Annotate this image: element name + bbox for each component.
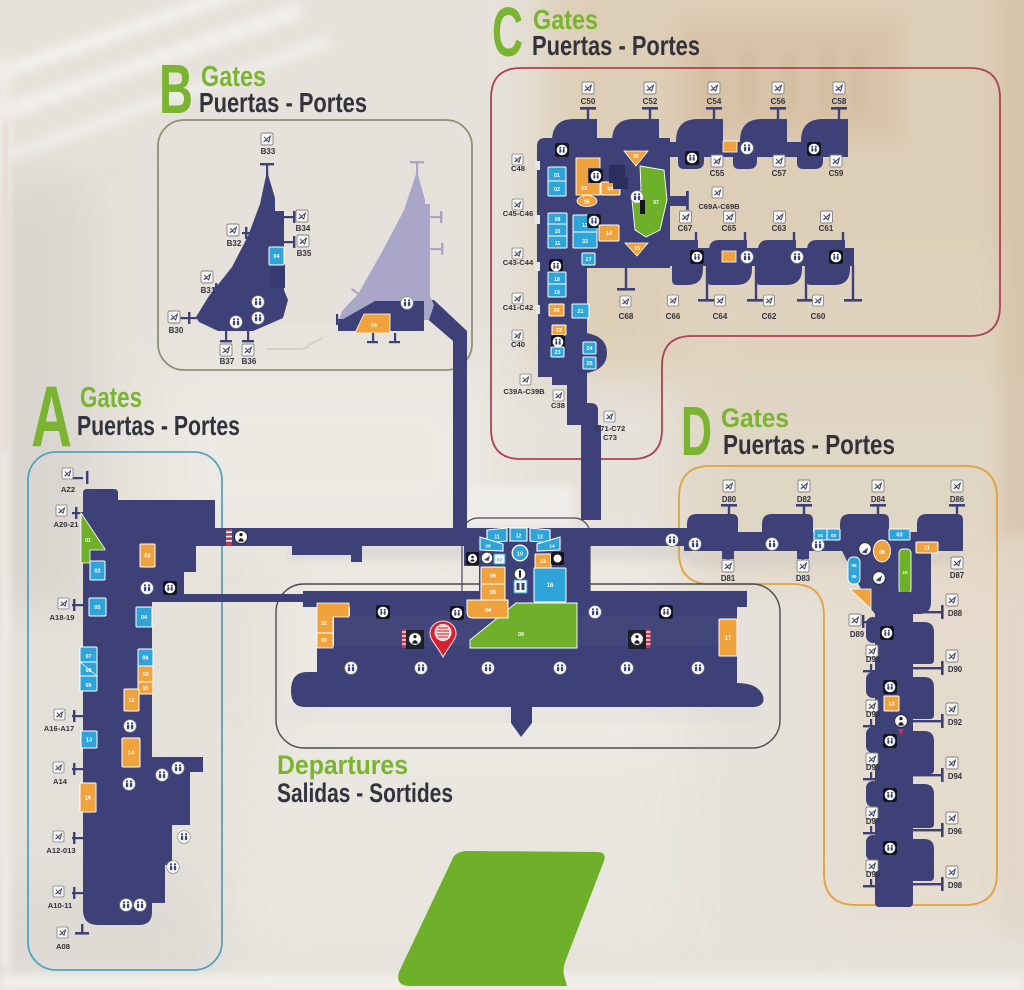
svg-text:D82: D82 <box>797 495 812 504</box>
svg-text:Puertas - Portes: Puertas - Portes <box>723 429 895 460</box>
svg-text:11: 11 <box>494 535 500 541</box>
svg-text:04: 04 <box>141 615 148 621</box>
svg-text:B37: B37 <box>220 357 235 366</box>
svg-text:B33: B33 <box>261 147 276 156</box>
svg-text:03: 03 <box>896 533 902 539</box>
svg-text:11: 11 <box>555 241 561 247</box>
svg-text:C61: C61 <box>819 224 834 233</box>
svg-text:11: 11 <box>143 686 149 692</box>
svg-text:D99: D99 <box>866 870 881 879</box>
svg-text:18: 18 <box>554 277 560 283</box>
svg-text:09: 09 <box>518 632 524 638</box>
svg-text:07: 07 <box>653 200 659 206</box>
svg-text:C45-C46: C45-C46 <box>503 209 533 218</box>
svg-text:17: 17 <box>725 636 731 642</box>
svg-text:03: 03 <box>581 186 587 192</box>
svg-text:08: 08 <box>485 544 491 550</box>
svg-text:A14: A14 <box>53 777 68 786</box>
svg-text:C56: C56 <box>771 97 786 106</box>
svg-text:A16-A17: A16-A17 <box>44 724 74 733</box>
svg-text:C60: C60 <box>811 312 826 321</box>
svg-text:C73: C73 <box>603 433 617 442</box>
svg-text:C39A-C39B: C39A-C39B <box>503 387 545 396</box>
svg-text:07: 07 <box>497 558 503 564</box>
svg-text:B36: B36 <box>242 357 257 366</box>
svg-text:D83: D83 <box>796 574 811 583</box>
svg-text:08: 08 <box>86 668 92 674</box>
svg-text:D98: D98 <box>948 881 963 890</box>
svg-text:D80: D80 <box>722 495 737 504</box>
svg-text:10: 10 <box>902 570 908 576</box>
svg-text:02: 02 <box>554 187 560 193</box>
svg-text:C52: C52 <box>643 97 658 106</box>
svg-text:D81: D81 <box>721 574 736 583</box>
svg-text:14: 14 <box>128 751 135 757</box>
svg-text:D90: D90 <box>948 665 963 674</box>
svg-text:03: 03 <box>144 554 150 560</box>
svg-text:D95: D95 <box>866 763 881 772</box>
svg-text:05: 05 <box>94 605 100 611</box>
svg-text:04: 04 <box>273 254 280 260</box>
svg-text:C62: C62 <box>762 312 777 321</box>
svg-text:15: 15 <box>634 246 640 252</box>
svg-text:06: 06 <box>584 200 590 206</box>
svg-text:D89: D89 <box>850 630 865 639</box>
svg-text:01: 01 <box>85 538 91 544</box>
svg-text:C68: C68 <box>619 312 634 321</box>
svg-text:05: 05 <box>490 590 496 596</box>
svg-text:A12-013: A12-013 <box>46 846 75 855</box>
svg-text:A08: A08 <box>56 942 70 951</box>
svg-text:D93: D93 <box>866 710 881 719</box>
svg-text:B35: B35 <box>297 249 312 258</box>
svg-text:Puertas - Portes: Puertas - Portes <box>532 30 700 61</box>
svg-text:D87: D87 <box>950 571 964 580</box>
svg-text:B30: B30 <box>169 326 184 335</box>
svg-text:04: 04 <box>371 323 377 329</box>
svg-text:09: 09 <box>86 683 92 689</box>
svg-text:D92: D92 <box>948 718 963 727</box>
svg-text:C40: C40 <box>511 340 525 349</box>
svg-text:B31: B31 <box>201 286 216 295</box>
svg-text:C63: C63 <box>772 224 787 233</box>
svg-text:C48: C48 <box>511 164 525 173</box>
svg-text:C57: C57 <box>772 169 787 178</box>
svg-text:14: 14 <box>549 544 555 550</box>
svg-text:D97: D97 <box>866 817 880 826</box>
svg-text:B34: B34 <box>296 224 311 233</box>
svg-text:14: 14 <box>606 231 613 237</box>
svg-text:16: 16 <box>85 796 91 802</box>
svg-text:D: D <box>681 392 712 470</box>
svg-text:C71-C72: C71-C72 <box>595 424 625 433</box>
svg-text:08: 08 <box>879 550 885 556</box>
svg-text:D88: D88 <box>948 609 963 618</box>
svg-text:10: 10 <box>142 672 148 678</box>
svg-text:06: 06 <box>490 574 496 580</box>
svg-text:08: 08 <box>555 217 561 223</box>
svg-text:11: 11 <box>924 546 930 552</box>
svg-text:D96: D96 <box>948 827 963 836</box>
svg-text:01: 01 <box>818 533 824 538</box>
svg-text:C69A-C69B: C69A-C69B <box>698 202 740 211</box>
svg-text:02: 02 <box>321 621 327 627</box>
svg-text:D94: D94 <box>948 772 963 781</box>
svg-text:A: A <box>31 369 72 465</box>
svg-text:10: 10 <box>555 229 561 235</box>
svg-text:06: 06 <box>142 656 148 662</box>
svg-text:C38: C38 <box>551 401 565 410</box>
svg-text:06: 06 <box>851 574 857 579</box>
svg-text:C41-C42: C41-C42 <box>503 303 533 312</box>
svg-text:24: 24 <box>586 346 593 352</box>
svg-text:C43-C44: C43-C44 <box>503 258 534 267</box>
svg-text:C: C <box>492 0 523 71</box>
svg-text:33: 33 <box>582 239 588 245</box>
svg-text:Puertas - Portes: Puertas - Portes <box>77 410 240 441</box>
svg-text:Puertas - Portes: Puertas - Portes <box>199 87 367 118</box>
svg-text:D84: D84 <box>871 495 886 504</box>
svg-text:B32: B32 <box>227 239 242 248</box>
svg-text:05: 05 <box>633 154 639 160</box>
svg-text:13: 13 <box>537 535 543 541</box>
svg-text:C58: C58 <box>832 97 847 106</box>
svg-text:17: 17 <box>585 257 591 263</box>
svg-text:C64: C64 <box>713 312 728 321</box>
svg-text:B: B <box>159 50 193 128</box>
svg-text:05: 05 <box>851 563 857 568</box>
svg-text:C65: C65 <box>722 224 737 233</box>
svg-text:04: 04 <box>485 608 492 614</box>
svg-text:22: 22 <box>556 328 562 334</box>
svg-text:Departures: Departures <box>277 750 408 780</box>
svg-text:21: 21 <box>577 309 583 315</box>
svg-text:C66: C66 <box>666 312 681 321</box>
svg-text:D86: D86 <box>950 495 965 504</box>
svg-text:C67: C67 <box>678 224 693 233</box>
svg-text:20: 20 <box>553 308 559 314</box>
svg-text:19: 19 <box>554 290 560 296</box>
svg-text:16: 16 <box>547 583 554 589</box>
svg-text:15: 15 <box>540 559 546 565</box>
svg-text:13: 13 <box>888 702 894 708</box>
svg-text:12: 12 <box>516 534 522 540</box>
svg-text:01: 01 <box>554 173 560 179</box>
svg-text:C55: C55 <box>710 169 725 178</box>
svg-text:02: 02 <box>94 569 100 575</box>
svg-text:03: 03 <box>321 638 327 644</box>
svg-text:C59: C59 <box>829 169 844 178</box>
svg-text:07: 07 <box>86 654 92 660</box>
svg-text:D91: D91 <box>866 655 881 664</box>
svg-text:A20-21: A20-21 <box>54 520 80 529</box>
svg-text:C50: C50 <box>581 97 596 106</box>
svg-text:C54: C54 <box>707 97 722 106</box>
svg-text:A18-19: A18-19 <box>50 613 75 622</box>
svg-text:AZ2: AZ2 <box>61 485 75 494</box>
svg-text:02: 02 <box>831 533 837 538</box>
svg-text:12: 12 <box>128 698 134 704</box>
svg-text:25: 25 <box>586 361 592 367</box>
svg-text:13: 13 <box>86 738 92 744</box>
svg-text:Salidas - Sortides: Salidas - Sortides <box>277 778 453 808</box>
svg-text:A10-11: A10-11 <box>48 901 73 910</box>
svg-text:23: 23 <box>554 350 560 356</box>
svg-text:10: 10 <box>517 552 523 558</box>
